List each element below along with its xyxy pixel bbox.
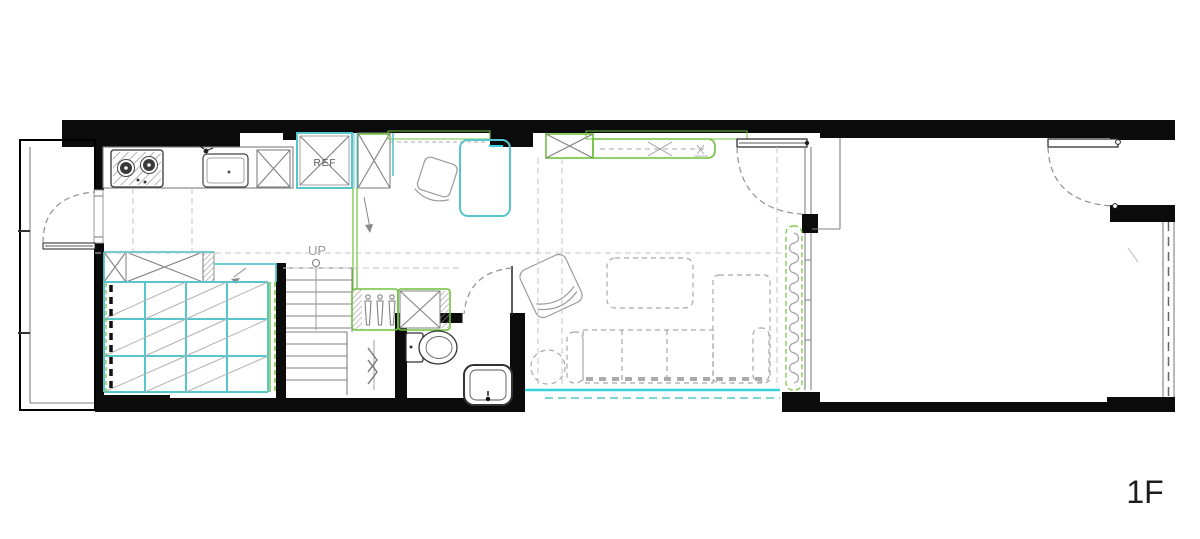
floor-label: 1F [1126, 474, 1163, 510]
flow-arrow [364, 197, 373, 233]
hall-cabinet-x [398, 289, 450, 330]
entry-door [737, 139, 809, 214]
living-room [517, 131, 811, 398]
porch-door-swing-arc [43, 192, 95, 243]
right-room [812, 138, 1174, 397]
hanger-icon [389, 295, 395, 325]
floor-plan-canvas: REF UP [0, 0, 1200, 539]
right-room-gate [1163, 222, 1174, 397]
stairs-up-marker [313, 260, 320, 267]
porch-outer-wall [20, 140, 95, 410]
right-room-door-swing-arc [1048, 147, 1112, 206]
tall-cabinet-x [358, 133, 390, 188]
kitchen-cabinet-x [257, 150, 290, 187]
tatami-green-edge [270, 282, 275, 392]
hanger-icon [377, 295, 383, 325]
bathroom [406, 266, 512, 405]
entry-porch [18, 140, 103, 410]
stairs-direction-arrow [368, 340, 377, 390]
living-side-window-frame [805, 147, 811, 390]
sketch-tick [1128, 248, 1138, 262]
curtain-radiator [786, 226, 802, 390]
coat-closet [352, 289, 398, 330]
porch-door-jamb [94, 190, 103, 243]
desk [460, 140, 510, 216]
tatami-room [104, 252, 276, 392]
entry-door-swing-arc [737, 147, 802, 214]
living-window [525, 390, 780, 398]
hanger-icon [365, 295, 371, 325]
coffee-table [607, 258, 693, 308]
kitchen: REF [103, 133, 390, 253]
wall-edge-green [353, 188, 357, 289]
bathroom-door [462, 266, 512, 323]
refrigerator-label: REF [314, 158, 337, 169]
staircase: UP [286, 188, 377, 395]
stairs-up-label: UP [308, 243, 326, 258]
porch-door [43, 192, 95, 249]
floor-plan-page: REF UP [0, 0, 1200, 539]
stove-icon [111, 150, 163, 187]
refrigerator: REF [297, 133, 352, 188]
tv-console [593, 139, 715, 158]
desk-chair [413, 155, 460, 205]
toilet-icon [406, 331, 457, 364]
washbasin-icon [464, 365, 512, 405]
right-room-door [1048, 139, 1120, 208]
sofa [567, 275, 770, 383]
platform-step-edge [214, 264, 276, 282]
side-table [531, 350, 565, 384]
tatami-grid [104, 282, 268, 392]
armchair [517, 252, 584, 320]
storage-cabinets-x [104, 252, 214, 282]
